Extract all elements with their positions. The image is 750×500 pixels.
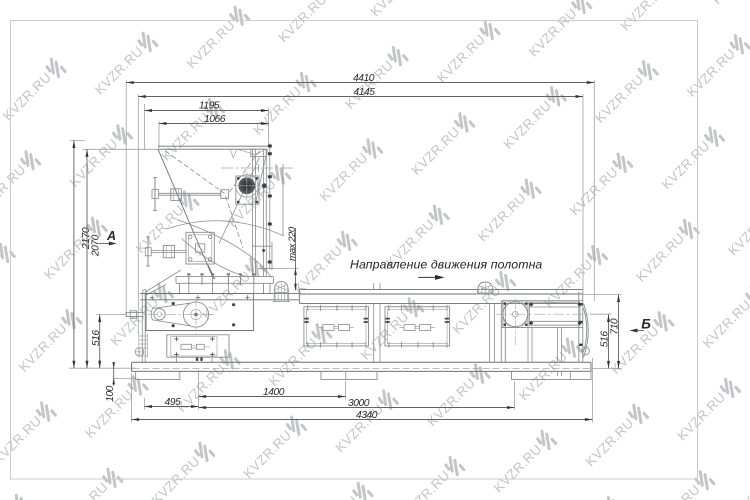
svg-text:Б: Б: [641, 317, 651, 332]
svg-text:3000: 3000: [348, 398, 370, 409]
svg-text:4410: 4410: [353, 73, 375, 84]
svg-text:1066: 1066: [204, 114, 226, 125]
svg-text:2070: 2070: [90, 234, 101, 257]
svg-text:max 220: max 220: [287, 226, 298, 261]
svg-text:4340: 4340: [356, 410, 378, 421]
svg-text:Направление движения полотна: Направление движения полотна: [350, 257, 542, 271]
svg-text:1400: 1400: [263, 387, 285, 398]
svg-text:А: А: [106, 229, 116, 243]
svg-text:516: 516: [91, 330, 102, 347]
svg-text:1195: 1195: [199, 101, 220, 112]
svg-text:4145: 4145: [353, 87, 375, 98]
svg-text:100: 100: [105, 385, 116, 402]
svg-text:710: 710: [610, 318, 621, 335]
svg-text:495: 495: [165, 397, 182, 408]
